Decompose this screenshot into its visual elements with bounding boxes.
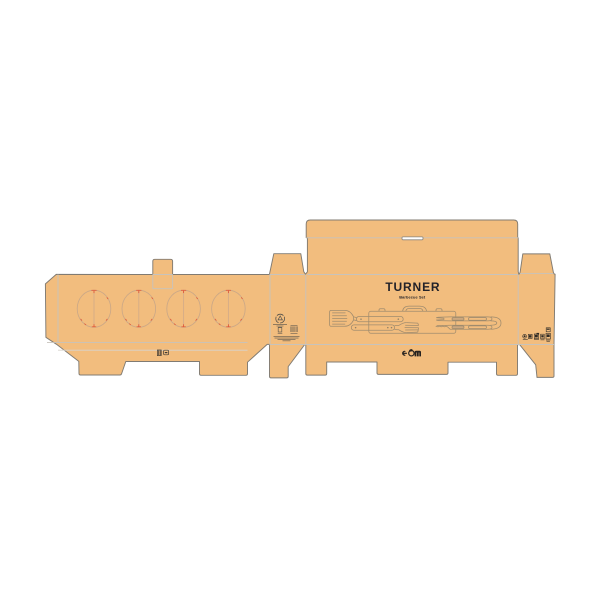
svg-text:Barbecue Set: Barbecue Set [399, 294, 426, 299]
svg-text:TURNER: TURNER [385, 280, 440, 294]
